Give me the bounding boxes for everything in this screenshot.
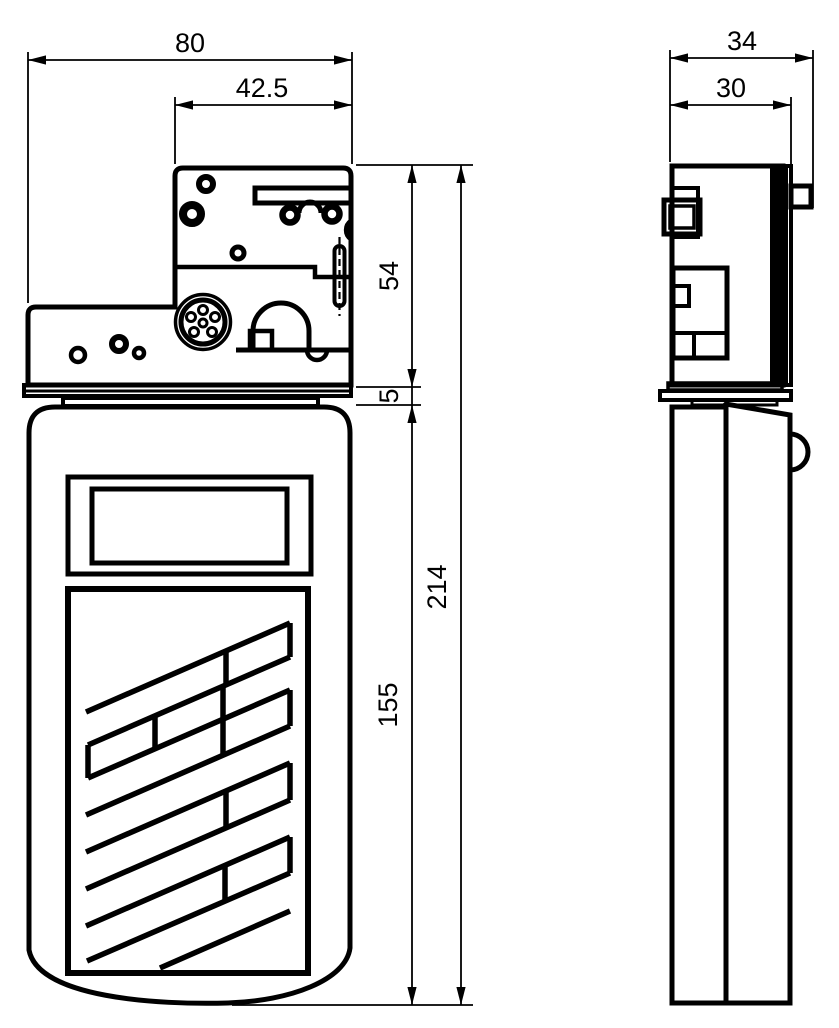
- connector-pin: [208, 328, 217, 337]
- technical-drawing: 80 42.5 54 5 155 214 34 30: [0, 0, 839, 1028]
- connector-pin: [199, 319, 207, 327]
- side-clip-bump: [790, 434, 808, 470]
- side-mounting-bar: [770, 166, 783, 385]
- hole-top-left: [199, 177, 213, 191]
- block-step-line: [177, 267, 351, 277]
- dim-label-depth-inner: 30: [716, 73, 746, 103]
- keypad-stripes: [86, 623, 290, 968]
- dim-label-width-total: 80: [175, 28, 205, 58]
- hole-small-center: [232, 247, 244, 259]
- dimensions: 80 42.5 54 5 155 214 34 30: [28, 26, 813, 1005]
- mounting-holes: [183, 177, 351, 259]
- separation-strips: [24, 385, 351, 406]
- dim-label-height-body: 155: [373, 682, 403, 727]
- hole-right: [325, 207, 340, 222]
- side-right-lug: [791, 186, 811, 207]
- cable-slot: [255, 188, 351, 203]
- side-handheld-body: [672, 404, 790, 1003]
- connector-pin: [187, 313, 196, 322]
- cable-dome: [236, 303, 351, 360]
- dim-label-height-total: 214: [422, 564, 452, 609]
- side-window: [673, 268, 727, 358]
- hole-left: [183, 205, 201, 223]
- dim-label-width-upper: 42.5: [236, 73, 289, 103]
- connector-pin: [199, 306, 208, 315]
- dim-label-depth-total: 34: [727, 26, 757, 56]
- screw-pin: [335, 237, 345, 316]
- hole-mid-right: [283, 208, 298, 223]
- dim-label-gap: 5: [374, 388, 404, 403]
- dim-label-height-upper: 54: [374, 261, 404, 291]
- side-view: [660, 166, 811, 1003]
- connector-pin: [211, 313, 220, 322]
- display-bezel: [68, 477, 311, 574]
- drawing-canvas: 80 42.5 54 5 155 214 34 30: [0, 0, 839, 1028]
- display-window: [92, 489, 287, 563]
- hole-bridge-arc: [299, 202, 321, 213]
- front-view: [24, 168, 351, 1003]
- connector-socket: [176, 295, 231, 350]
- connector-pin: [190, 328, 199, 337]
- plate-holes: [71, 337, 144, 362]
